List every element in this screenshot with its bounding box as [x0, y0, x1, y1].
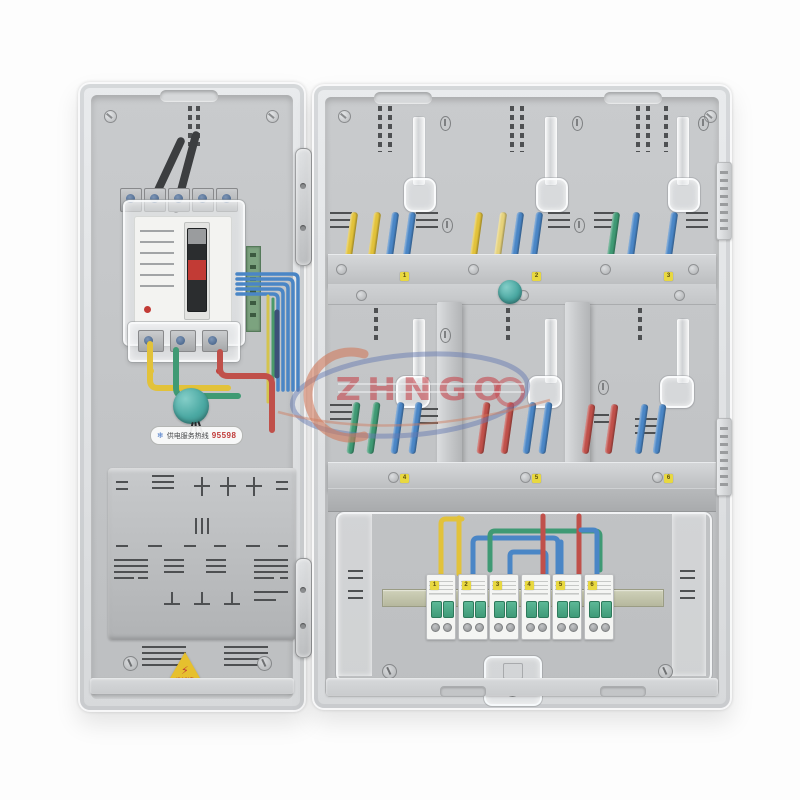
vent-column [510, 106, 514, 152]
vent-block [686, 212, 708, 228]
rail-screw [520, 472, 531, 483]
meter-window-blank-panel [108, 468, 296, 640]
tamper-seal [498, 280, 522, 304]
meter-bay-tag: 3 [664, 272, 673, 281]
mini-breaker: 6 [584, 574, 614, 640]
band-screw [674, 290, 685, 301]
meter-rail-top [328, 254, 716, 287]
bottom-slot-screw [123, 656, 138, 671]
vent-block [594, 414, 609, 426]
watermark-slit [338, 383, 524, 385]
vent-block [548, 212, 570, 228]
hotline-label: ❄ 供电服务热线 95598 [150, 426, 243, 445]
bottom-slot-screw [257, 656, 272, 671]
terminal-screw [443, 623, 452, 632]
vent-block [348, 590, 363, 602]
vent-pattern [108, 468, 296, 640]
terminal-screw [506, 623, 515, 632]
terminal-screw [538, 623, 547, 632]
oval-slot [440, 116, 451, 131]
mini-breaker-row: 1 2 3 [426, 574, 615, 640]
mini-breaker: 3 [489, 574, 519, 640]
top-handle-recess [374, 92, 432, 104]
hinge-clasp [295, 558, 312, 658]
utility-logo-icon: ❄ [157, 431, 164, 440]
breaker-toggle [538, 601, 549, 618]
breaker-toggle [494, 601, 505, 618]
meter-box-photo: ❄ 供电服务热线 95598 ⚡ 当心触电 [0, 0, 800, 800]
vent-block [680, 590, 695, 602]
breaker-toggle [475, 601, 486, 618]
meter-bay-tag: 4 [400, 474, 409, 483]
terminal-screw [589, 623, 598, 632]
meter-hook [412, 116, 426, 186]
bottom-slot-screw [382, 664, 397, 679]
mini-breaker: 1 [426, 574, 456, 640]
meter-hook [676, 318, 690, 384]
rail-screw [388, 472, 399, 483]
mini-breaker: 5 [552, 574, 582, 640]
corner-screw [266, 110, 279, 123]
left-wiring-illustration [118, 262, 303, 442]
top-handle-recess [160, 90, 218, 102]
latch-slot [503, 663, 523, 679]
vent-column [646, 106, 650, 152]
vent-column [378, 106, 382, 152]
vent-column [520, 106, 524, 152]
terminal-screw [463, 623, 472, 632]
corner-screw [338, 110, 351, 123]
right-hinge [716, 162, 732, 240]
watermark-text: ZHNGO [335, 372, 508, 409]
terminal-screw [475, 623, 484, 632]
meter-hook [676, 116, 690, 186]
vent-column [374, 308, 378, 344]
oval-slot [598, 380, 609, 395]
meter-hook-end [536, 178, 568, 212]
breaker-toggle [526, 601, 537, 618]
breaker-toggle [443, 601, 454, 618]
mini-breaker: 2 [458, 574, 488, 640]
rail-screw [468, 264, 479, 275]
tamper-seal [173, 388, 209, 424]
hotline-number: 95598 [212, 431, 237, 440]
breaker-toggle [557, 601, 568, 618]
breaker-tag: 3 [493, 581, 502, 590]
oval-slot [698, 116, 709, 131]
oval-slot [574, 218, 585, 233]
oval-slot [440, 328, 451, 343]
rail-screw [688, 264, 699, 275]
breaker-toggle [506, 601, 517, 618]
top-handle-recess [604, 92, 662, 104]
mini-breaker: 4 [521, 574, 551, 640]
terminal-screw [569, 623, 578, 632]
vent-block [416, 212, 438, 228]
right-hinge [716, 418, 732, 496]
meter-bay-tag: 5 [532, 474, 541, 483]
vent-column [638, 308, 642, 344]
lightning-bolt-icon: ⚡ [181, 664, 189, 677]
lip-recess [440, 686, 486, 697]
hinge-clasp [295, 148, 312, 266]
distribution-wiring-illustration [370, 508, 670, 578]
breaker-tag: 5 [556, 581, 565, 590]
terminal-screw [601, 623, 610, 632]
oval-slot [442, 218, 453, 233]
hotline-label-text: 供电服务热线 [167, 431, 209, 441]
bottom-lip [90, 678, 294, 694]
band-screw [356, 290, 367, 301]
vent-column [636, 106, 640, 152]
breaker-tag: 2 [462, 581, 471, 590]
vent-column [664, 106, 668, 152]
rail-screw [600, 264, 611, 275]
meter-bay-tag: 1 [400, 272, 409, 281]
lip-recess [600, 686, 646, 697]
breaker-tag: 6 [588, 581, 597, 590]
breaker-tag: 4 [525, 581, 534, 590]
terminal-screw [494, 623, 503, 632]
meter-hook-end [660, 376, 694, 408]
vent-column [506, 308, 510, 344]
meter-hook-end [668, 178, 700, 212]
oval-slot [572, 116, 583, 131]
breaker-toggle [601, 601, 612, 618]
meter-bay-tag: 2 [532, 272, 541, 281]
corner-screw [104, 110, 117, 123]
vent-column [388, 106, 392, 152]
terminal-screw [557, 623, 566, 632]
breaker-toggle [589, 601, 600, 618]
vent-block [348, 570, 363, 582]
breaker-tag: 1 [430, 581, 439, 590]
breaker-toggle [569, 601, 580, 618]
terminal-screw [431, 623, 440, 632]
meter-hook [544, 318, 558, 384]
breaker-toggle [463, 601, 474, 618]
watermark-slit [338, 391, 524, 393]
terminal-screw [526, 623, 535, 632]
rail-screw [652, 472, 663, 483]
meter-bay-tag: 6 [664, 474, 673, 483]
rail-screw [336, 264, 347, 275]
meter-hook [544, 116, 558, 186]
bottom-lip [326, 678, 718, 696]
left-door: ❄ 供电服务热线 95598 ⚡ 当心触电 [78, 82, 306, 712]
bottom-slot-screw [658, 664, 673, 679]
vent-block [680, 570, 695, 582]
meter-hook-end [404, 178, 436, 212]
breaker-toggle [431, 601, 442, 618]
